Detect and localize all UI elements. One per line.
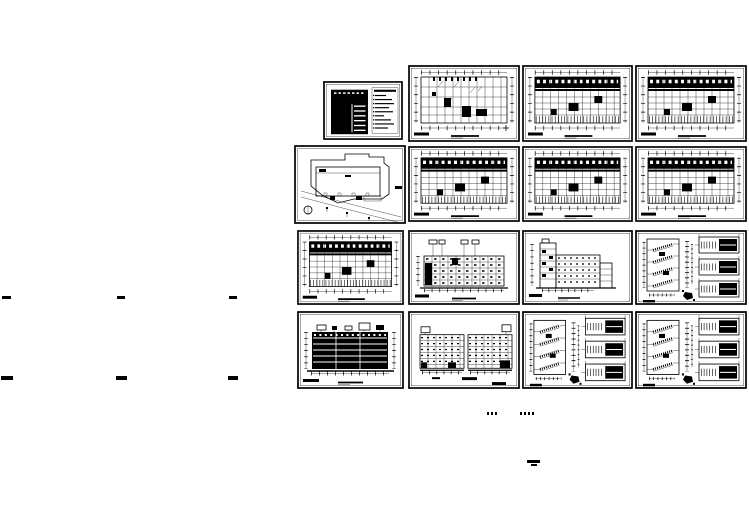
sheet-elevation-b [297,311,404,389]
plan-dense-drawing [297,230,404,305]
sheet-floor-plan-g [297,230,404,305]
plan-dense-drawing [522,65,633,142]
elev-side-drawing [522,230,633,305]
caption-text-3 [228,376,238,380]
caption-text-2 [116,376,127,380]
sheet-floor-plan-d [408,146,520,222]
caption-dots-2 [520,412,534,415]
caption-dash-1 [2,296,11,299]
sheet-floor-plan-b [522,65,633,142]
plan-dense-drawing [635,65,747,142]
plan-dense-drawing [522,146,633,222]
sheet-drawing-index-table [323,81,403,140]
sheet-site-plan [294,145,406,224]
sheet-elevation-c [408,311,520,389]
drawing-canvas [0,0,749,530]
plan-dense-drawing [635,146,747,222]
caption-dots-1 [487,412,498,415]
stair-drawing [635,230,747,305]
scale-bar-bottom [531,464,537,466]
site-drawing [294,145,406,224]
elev-light-drawing [408,230,520,305]
caption-text-1 [1,376,13,380]
caption-dash-2 [117,296,125,299]
plan-dense-drawing [408,146,520,222]
sheet-floor-plan-f [635,146,747,222]
sheet-elevation-side [522,230,633,305]
caption-dash-3 [229,296,237,299]
scale-bar-top [527,460,540,463]
sheet-stair-detail-c [635,311,747,389]
sheet-floor-plan-a [408,65,520,142]
plan-sparse-drawing [408,65,520,142]
sheet-stair-detail-a [635,230,747,305]
sheet-floor-plan-c [635,65,747,142]
schedule-drawing [323,81,403,140]
sheet-floor-plan-e [522,146,633,222]
sheet-stair-detail-b [522,311,633,389]
elev-twopart-drawing [408,311,520,389]
stair-drawing [635,311,747,389]
sheet-elevation-a [408,230,520,305]
stair-drawing [522,311,633,389]
elev-dark-drawing [297,311,404,389]
